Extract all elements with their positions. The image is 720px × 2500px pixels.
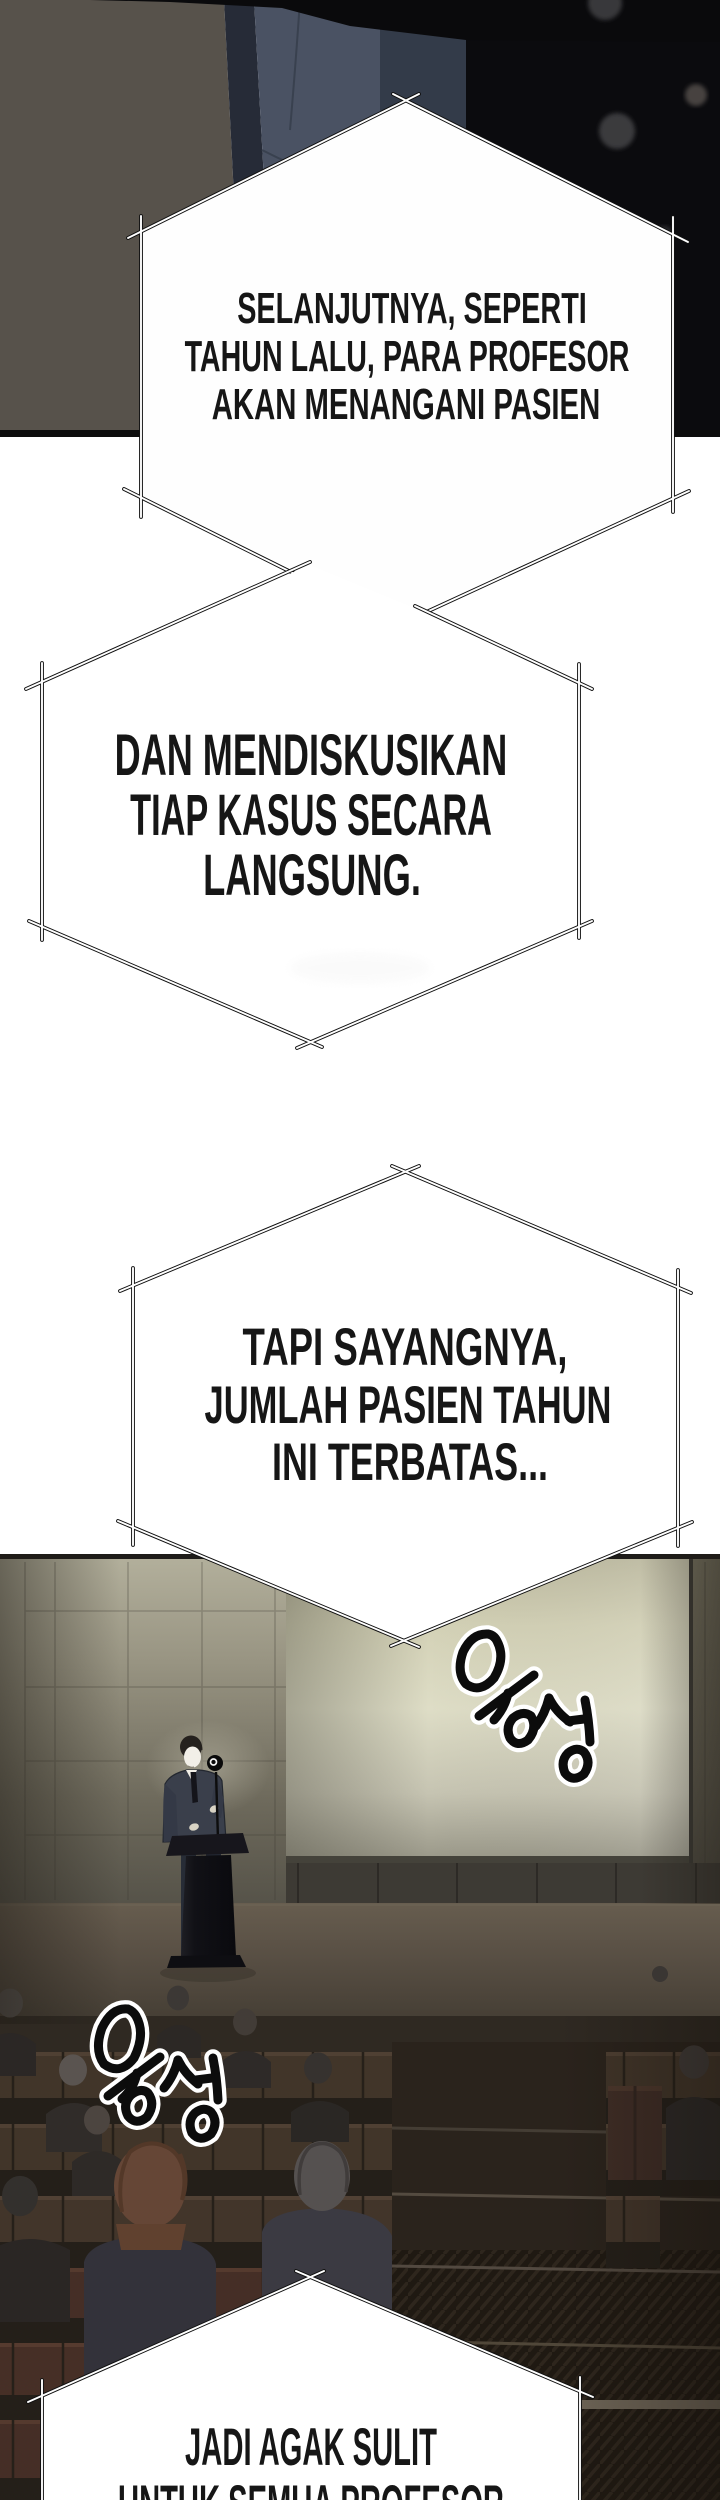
svg-text:SELANJUTNYA, SEPERTI: SELANJUTNYA, SEPERTI (237, 283, 587, 333)
svg-text:DAN MENDISKUSIKAN: DAN MENDISKUSIKAN (115, 723, 508, 788)
svg-text:LANGSUNG.: LANGSUNG. (203, 843, 421, 908)
svg-text:TAHUN LALU, PARA PROFESOR: TAHUN LALU, PARA PROFESOR (185, 331, 630, 381)
svg-text:JADI AGAK SULIT: JADI AGAK SULIT (185, 2418, 437, 2477)
svg-text:UNTUK SEMUA PROFESOR: UNTUK SEMUA PROFESOR (118, 2475, 504, 2500)
svg-text:AKAN MENANGANI PASIEN: AKAN MENANGANI PASIEN (212, 379, 601, 428)
svg-text:TAPI SAYANGNYA,: TAPI SAYANGNYA, (243, 1317, 568, 1376)
svg-text:JUMLAH PASIEN TAHUN: JUMLAH PASIEN TAHUN (205, 1377, 612, 1435)
svg-text:INI TERBATAS...: INI TERBATAS... (272, 1432, 548, 1492)
svg-text:TIAP KASUS SECARA: TIAP KASUS SECARA (130, 784, 492, 848)
